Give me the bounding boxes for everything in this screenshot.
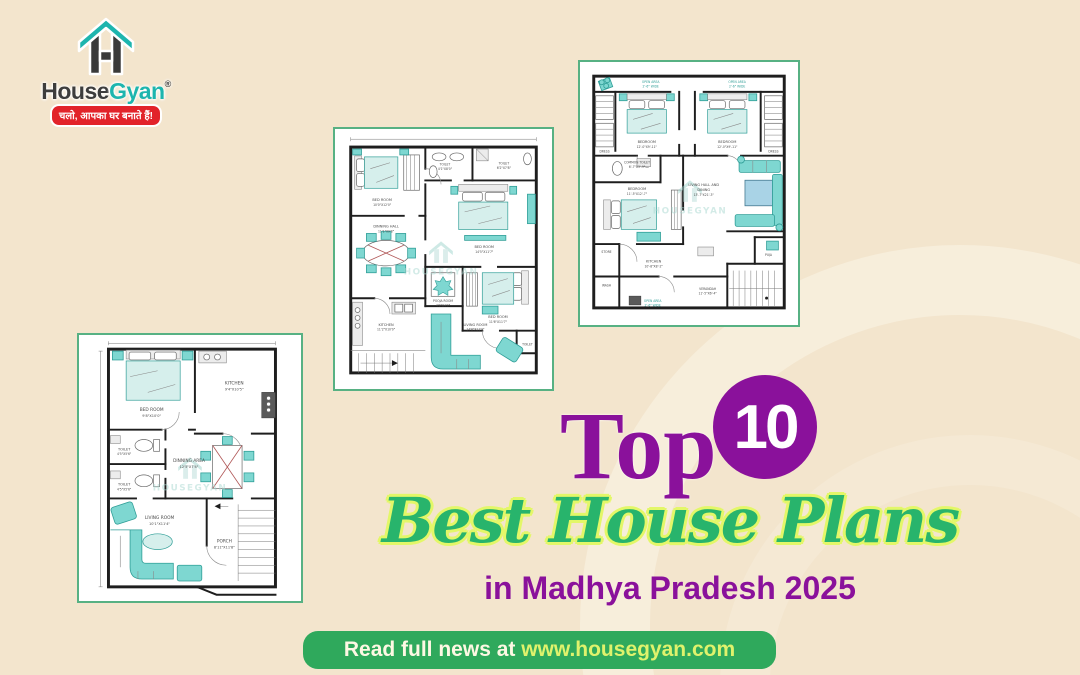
- svg-text:HOUSEGYAN: HOUSEGYAN: [404, 268, 479, 278]
- floor-plan-card-top-right: HOUSEGYAN OPEN AREA 2'-6" WIDE OPEN AREA…: [578, 60, 800, 327]
- room-label: LIVING ROOM: [463, 323, 487, 327]
- staircase-icon: [359, 353, 414, 373]
- bed-icon: [451, 184, 535, 240]
- room-label: OPEN AREA: [642, 80, 660, 84]
- room-dims: 11'-5"X12'-7": [627, 192, 648, 196]
- room-label: BED ROOM: [488, 315, 507, 319]
- room-dims: 9'8"X10'0": [142, 414, 161, 418]
- room-label: POOJA ROOM: [433, 299, 453, 303]
- room-dims: 13'-7"X21'-3": [694, 193, 715, 197]
- room-dims: 8'11"X11'8": [214, 546, 235, 550]
- room-label: LIVING ROOM: [145, 515, 175, 521]
- room-label: OPEN AREA: [728, 80, 746, 84]
- room-dims: 4'5"X5'6": [117, 488, 132, 492]
- bed-icon: [619, 94, 674, 133]
- room-label: OPEN AREA: [644, 299, 662, 303]
- room-dims: 4'1"X8'0": [438, 167, 453, 171]
- room-label: KITCHEN: [646, 260, 662, 264]
- bed-icon: [112, 350, 193, 400]
- room-dims: 4'0"X4'0": [436, 304, 451, 308]
- room-dims: 10'0"X12'0": [373, 203, 392, 207]
- staircase-icon: [729, 271, 782, 306]
- svg-text:HOUSEGYAN: HOUSEGYAN: [653, 207, 728, 217]
- room-label: TOILET: [498, 162, 510, 166]
- svg-text:HOUSEGYAN: HOUSEGYAN: [153, 484, 228, 494]
- room-dims: 14'8"X11'9": [466, 328, 485, 332]
- room-label: KITCHEN: [225, 381, 244, 387]
- room-label: DINNING AREA: [173, 458, 205, 464]
- room-dims: 10'1"X11'4": [149, 522, 170, 526]
- room-label: PORCH: [217, 539, 232, 545]
- room-label: VERANDAH: [699, 287, 716, 291]
- room-label: BED ROOM: [372, 198, 391, 202]
- top-10-badge: 10: [713, 375, 817, 479]
- registered-mark: ®: [165, 79, 171, 89]
- footer-banner[interactable]: Read full news at www.housegyan.com: [303, 631, 776, 669]
- brand-logo: HouseGyan® चलो, आपका घर बनाते हैं!: [36, 14, 176, 125]
- room-label: DRESS: [768, 150, 778, 154]
- headline-top-word: Top: [560, 398, 717, 494]
- room-dims: 10'-8"X8'-2": [644, 265, 663, 269]
- toilet-fixtures-icon: [110, 436, 159, 487]
- room-label: WASH: [602, 283, 611, 287]
- room-dims: 2'-6" WIDE: [643, 84, 659, 88]
- wardrobe-icon: [596, 96, 783, 147]
- room-dims: 12'5"X7'4": [180, 465, 199, 469]
- room-dims: 12'-0"X9'-11": [637, 145, 658, 149]
- plant-icon: [598, 77, 613, 91]
- room-dims: 6'-7"X3'-9": [629, 165, 646, 169]
- bed-icon: [353, 149, 420, 190]
- footer-prefix-text: Read full news at: [344, 638, 521, 662]
- room-dims: 11'1"X9'8": [378, 229, 395, 233]
- room-label: TOILET: [439, 163, 451, 167]
- room-label: BEDROOM: [718, 140, 736, 144]
- floor-plan-c-drawing: HOUSEGYAN OPEN AREA 2'-6" WIDE OPEN AREA…: [580, 62, 798, 325]
- brand-name-gyan: Gyan: [109, 78, 165, 104]
- room-label: DRESS: [599, 150, 609, 154]
- footer-url-link[interactable]: www.housegyan.com: [521, 638, 735, 662]
- room-label: BED ROOM: [140, 407, 164, 413]
- sofa-icon: [735, 156, 783, 231]
- room-label: DINNING HALL: [373, 225, 399, 229]
- headline-sub-line: in Madhya Pradesh 2025: [330, 570, 1010, 607]
- headline-script-line: Best House Plans: [330, 484, 1010, 558]
- room-dims: 9'4"X10'5": [225, 387, 244, 391]
- brand-name-house: House: [41, 78, 109, 104]
- poster-canvas: HouseGyan® चलो, आपका घर बनाते हैं!: [0, 0, 1080, 675]
- room-label: BED ROOM: [475, 245, 494, 249]
- badge-number: 10: [734, 392, 797, 463]
- room-dims: 11'6"X11'7": [489, 320, 508, 324]
- room-dims: 4'5"X5'6": [117, 452, 132, 456]
- room-dims: 12'-0"X9'-11": [717, 145, 738, 149]
- room-label: COMMON TOILET: [624, 161, 650, 165]
- room-label: DINING: [697, 188, 710, 192]
- room-label: KITCHEN: [378, 323, 394, 327]
- floor-plan-a-drawing: HOUSEGYAN BED ROOM 9'8"X10'0" KITCHEN 9'…: [79, 335, 301, 601]
- room-label: BEDROOM: [638, 140, 656, 144]
- room-dims: 6'2"X7'8": [497, 166, 512, 170]
- sofa-icon: [110, 501, 202, 581]
- room-dims: 11'2"X10'0": [377, 328, 396, 332]
- floor-plan-card-bottom-left: HOUSEGYAN BED ROOM 9'8"X10'0" KITCHEN 9'…: [77, 333, 303, 603]
- pooja-shrine-icon: [767, 241, 779, 250]
- watermark: HOUSEGYAN: [404, 241, 479, 277]
- bed-icon: [700, 94, 757, 133]
- room-label: LIVING HALL AND: [688, 183, 719, 187]
- room-dims: 11'-5"X6'-4": [698, 292, 717, 296]
- room-label: TOILET: [117, 447, 131, 451]
- house-logo-icon: [74, 14, 138, 80]
- brand-name: HouseGyan®: [36, 80, 176, 103]
- room-dims: 2'-6" WIDE: [729, 84, 745, 88]
- room-label: BEDROOM: [628, 187, 646, 191]
- floor-plan-b-drawing: HOUSEGYAN BED ROOM 10'0"X12'0" TOILET 4'…: [335, 129, 552, 389]
- room-dims: 14'5"X11'7": [475, 250, 494, 254]
- room-label: TOILET: [521, 342, 533, 346]
- room-label: PUJA: [765, 253, 773, 257]
- room-label: TOILET: [117, 483, 131, 487]
- floor-plan-card-top-middle: HOUSEGYAN BED ROOM 10'0"X12'0" TOILET 4'…: [333, 127, 554, 391]
- room-label: STORE: [601, 250, 611, 254]
- brand-tagline-ribbon: चलो, आपका घर बनाते हैं!: [52, 106, 160, 125]
- dimension-lines: [351, 137, 537, 141]
- room-dims: 2'-6" WIDE: [645, 303, 661, 307]
